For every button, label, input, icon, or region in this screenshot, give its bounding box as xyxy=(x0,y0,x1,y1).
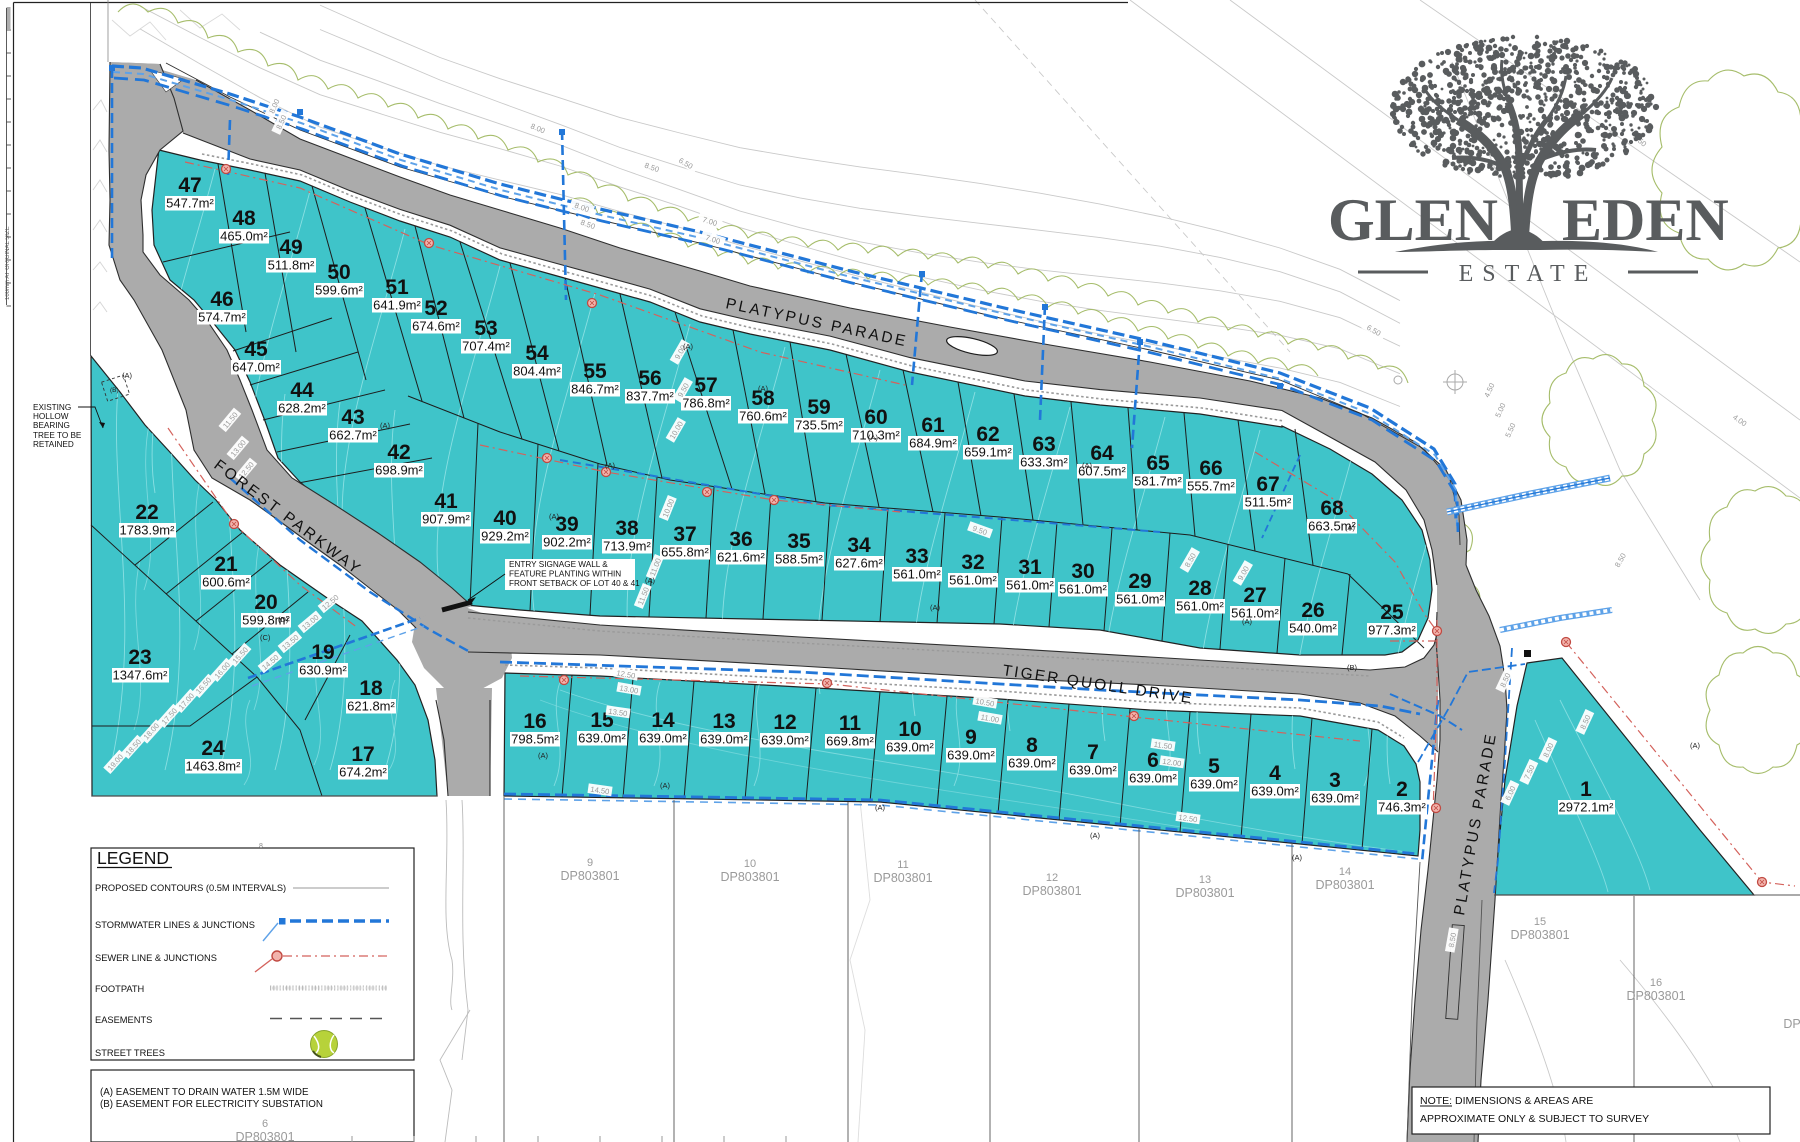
svg-text:RETAINED: RETAINED xyxy=(33,440,74,449)
svg-text:19: 19 xyxy=(311,641,334,664)
svg-text:786.8m²: 786.8m² xyxy=(682,396,730,411)
svg-text:38: 38 xyxy=(615,517,639,540)
svg-text:41: 41 xyxy=(434,490,458,513)
svg-text:639.0m²: 639.0m² xyxy=(1129,771,1177,786)
svg-text:54: 54 xyxy=(525,342,549,365)
svg-text:15: 15 xyxy=(1534,916,1546,928)
svg-text:798.5m²: 798.5m² xyxy=(511,732,559,747)
svg-text:(A): (A) xyxy=(1345,523,1356,532)
svg-text:DP803801: DP803801 xyxy=(873,871,932,885)
svg-text:628.2m²: 628.2m² xyxy=(278,401,326,416)
svg-text:561.0m²: 561.0m² xyxy=(1231,606,1279,621)
svg-text:662.7m²: 662.7m² xyxy=(329,428,377,443)
svg-text:31: 31 xyxy=(1018,556,1042,579)
svg-text:7: 7 xyxy=(1087,741,1099,764)
svg-text:698.9m²: 698.9m² xyxy=(375,463,423,478)
svg-text:DP803801: DP803801 xyxy=(1626,989,1685,1003)
svg-text:746.3m²: 746.3m² xyxy=(1378,800,1426,815)
svg-text:10: 10 xyxy=(898,718,921,741)
svg-text:(A): (A) xyxy=(1690,741,1701,750)
svg-text:713.9m²: 713.9m² xyxy=(603,539,651,554)
svg-text:1347.6m²: 1347.6m² xyxy=(113,668,169,683)
svg-text:35: 35 xyxy=(787,530,811,553)
svg-text:621.6m²: 621.6m² xyxy=(717,550,765,565)
svg-text:659.1m²: 659.1m² xyxy=(964,445,1012,460)
svg-text:56: 56 xyxy=(638,367,661,390)
svg-text:NOTE: DIMENSIONS & AREAS ARE: NOTE: DIMENSIONS & AREAS ARE xyxy=(1420,1095,1593,1107)
svg-text:(A) EASEMENT TO DRAIN WATER: (A) EASEMENT TO DRAIN WATER 1.5M WIDE xyxy=(100,1087,309,1098)
svg-text:62: 62 xyxy=(976,423,999,446)
svg-text:804.4m²: 804.4m² xyxy=(513,364,561,379)
svg-text:68: 68 xyxy=(1320,497,1344,520)
svg-text:13: 13 xyxy=(1199,874,1211,886)
svg-text:8: 8 xyxy=(259,843,263,850)
svg-text:1463.8m²: 1463.8m² xyxy=(186,759,242,774)
svg-text:(A): (A) xyxy=(122,371,133,380)
svg-text:61: 61 xyxy=(921,414,945,437)
svg-text:64: 64 xyxy=(1090,442,1114,465)
svg-text:DP803801: DP803801 xyxy=(1175,886,1234,900)
svg-text:540.0m²: 540.0m² xyxy=(1289,621,1337,636)
svg-text:BEARING: BEARING xyxy=(33,421,70,430)
svg-text:684.9m²: 684.9m² xyxy=(909,436,957,451)
svg-text:30: 30 xyxy=(1071,560,1094,583)
svg-text:837.7m²: 837.7m² xyxy=(626,389,674,404)
svg-text:(A): (A) xyxy=(683,342,694,351)
svg-text:57: 57 xyxy=(694,374,717,397)
svg-text:655.8m²: 655.8m² xyxy=(661,545,709,560)
svg-text:(C): (C) xyxy=(260,633,271,642)
svg-text:(A): (A) xyxy=(758,384,769,393)
svg-text:2: 2 xyxy=(1396,778,1408,801)
svg-text:511.5m²: 511.5m² xyxy=(1245,495,1292,510)
svg-text:(B) EASEMENT FOR ELECTRICITY: (B) EASEMENT FOR ELECTRICITY SUBSTATION xyxy=(100,1099,323,1110)
svg-text:APPROXIMATE ONLY & SUBJECT TO: APPROXIMATE ONLY & SUBJECT TO SURVEY xyxy=(1420,1113,1649,1125)
svg-text:760.6m²: 760.6m² xyxy=(739,409,787,424)
svg-text:46: 46 xyxy=(210,288,233,311)
svg-text:20: 20 xyxy=(254,591,277,614)
svg-text:47: 47 xyxy=(178,174,201,197)
svg-text:(D): (D) xyxy=(278,615,289,624)
svg-text:561.0m²: 561.0m² xyxy=(949,573,997,588)
svg-text:16: 16 xyxy=(523,710,546,733)
svg-text:18: 18 xyxy=(359,677,383,700)
svg-text:17: 17 xyxy=(351,743,374,766)
svg-text:621.8m²: 621.8m² xyxy=(347,699,395,714)
svg-text:641.9m²: 641.9m² xyxy=(373,298,421,313)
svg-text:674.2m²: 674.2m² xyxy=(339,765,387,780)
svg-text:3: 3 xyxy=(1329,769,1341,792)
svg-text:59: 59 xyxy=(807,396,830,419)
svg-text:633.3m²: 633.3m² xyxy=(1020,455,1068,470)
svg-text:639.0m²: 639.0m² xyxy=(1008,756,1056,771)
svg-text:11: 11 xyxy=(897,859,908,871)
svg-text:547.7m²: 547.7m² xyxy=(166,196,214,211)
svg-text:52: 52 xyxy=(424,297,447,320)
svg-text:13: 13 xyxy=(712,710,735,733)
svg-text:TREE TO BE: TREE TO BE xyxy=(33,431,82,440)
svg-text:(A): (A) xyxy=(549,512,560,521)
svg-text:977.3m²: 977.3m² xyxy=(1368,623,1416,638)
svg-text:588.5m²: 588.5m² xyxy=(775,552,823,567)
svg-text:561.0m²: 561.0m² xyxy=(1116,592,1164,607)
svg-text:(A): (A) xyxy=(930,603,941,612)
svg-text:9: 9 xyxy=(965,726,977,749)
svg-text:630.9m²: 630.9m² xyxy=(299,663,347,678)
svg-text:FRONT SETBACK OF LOT 40 & 41: FRONT SETBACK OF LOT 40 & 41 xyxy=(509,579,640,588)
svg-text:(A): (A) xyxy=(875,803,886,812)
svg-text:ENTRY SIGNAGE WALL &: ENTRY SIGNAGE WALL & xyxy=(509,560,608,569)
svg-text:(A): (A) xyxy=(380,421,391,430)
svg-text:600.6m²: 600.6m² xyxy=(202,575,250,590)
svg-text:627.6m²: 627.6m² xyxy=(835,556,883,571)
svg-text:SEWER LINE & JUNCTIONS: SEWER LINE & JUNCTIONS xyxy=(95,953,217,963)
svg-text:707.4m²: 707.4m² xyxy=(462,339,510,354)
svg-text:DP: DP xyxy=(1783,1017,1800,1031)
svg-text:21: 21 xyxy=(214,553,238,576)
svg-text:GLEN: GLEN xyxy=(1328,187,1498,253)
svg-text:37: 37 xyxy=(673,523,696,546)
svg-text:FEATURE PLANTING WITHIN: FEATURE PLANTING WITHIN xyxy=(509,570,621,579)
svg-text:DP803801: DP803801 xyxy=(720,870,779,884)
svg-text:16: 16 xyxy=(1650,977,1662,989)
svg-text:42: 42 xyxy=(387,441,410,464)
svg-text:33: 33 xyxy=(905,545,928,568)
svg-text:735.5m²: 735.5m² xyxy=(795,418,843,433)
svg-text:44: 44 xyxy=(290,379,314,402)
svg-text:DP803801: DP803801 xyxy=(1022,884,1081,898)
svg-text:639.0m²: 639.0m² xyxy=(761,733,809,748)
svg-text:STORMWATER LINES & JUNCTIONS: STORMWATER LINES & JUNCTIONS xyxy=(95,920,255,930)
svg-text:555.7m²: 555.7m² xyxy=(1187,479,1235,494)
svg-text:(A): (A) xyxy=(1242,617,1253,626)
svg-text:ESTATE: ESTATE xyxy=(1459,261,1598,287)
svg-text:29: 29 xyxy=(1128,570,1151,593)
svg-text:639.0m²: 639.0m² xyxy=(1190,777,1238,792)
svg-text:DP803801: DP803801 xyxy=(235,1130,294,1142)
svg-text:(A): (A) xyxy=(538,751,549,760)
svg-text:DP803801: DP803801 xyxy=(1315,878,1374,892)
svg-text:902.2m²: 902.2m² xyxy=(543,535,591,550)
svg-text:511.8m²: 511.8m² xyxy=(268,258,315,273)
svg-text:53: 53 xyxy=(474,317,497,340)
svg-text:45: 45 xyxy=(244,338,268,361)
svg-text:66: 66 xyxy=(1199,457,1222,480)
svg-text:63: 63 xyxy=(1032,433,1055,456)
svg-text:639.0m²: 639.0m² xyxy=(1311,791,1359,806)
svg-text:9: 9 xyxy=(587,857,593,869)
svg-text:25: 25 xyxy=(1380,601,1404,624)
svg-text:DP803801: DP803801 xyxy=(560,869,619,883)
svg-text:561.0m²: 561.0m² xyxy=(1006,578,1054,593)
svg-text:929.2m²: 929.2m² xyxy=(481,529,529,544)
svg-text:STREET TREES: STREET TREES xyxy=(95,1048,165,1058)
svg-text:100mm AT ORIGINAL SIZE: 100mm AT ORIGINAL SIZE xyxy=(5,226,11,300)
svg-text:639.0m²: 639.0m² xyxy=(1069,763,1117,778)
svg-text:907.9m²: 907.9m² xyxy=(422,512,470,527)
svg-text:24: 24 xyxy=(201,737,225,760)
svg-text:LEGEND: LEGEND xyxy=(97,848,169,868)
svg-text:10: 10 xyxy=(744,858,756,870)
svg-text:574.7m²: 574.7m² xyxy=(198,310,246,325)
svg-text:2972.1m²: 2972.1m² xyxy=(1559,800,1615,815)
svg-text:639.0m²: 639.0m² xyxy=(947,748,995,763)
svg-text:55: 55 xyxy=(583,360,607,383)
svg-text:48: 48 xyxy=(232,207,256,230)
svg-text:(A): (A) xyxy=(605,461,616,470)
svg-text:6: 6 xyxy=(1147,749,1159,772)
svg-text:561.0m²: 561.0m² xyxy=(893,567,941,582)
svg-text:8: 8 xyxy=(1026,734,1038,757)
svg-text:639.0m²: 639.0m² xyxy=(886,740,934,755)
svg-text:FOOTPATH: FOOTPATH xyxy=(95,984,144,994)
svg-text:PROPOSED CONTOURS (0.5M INTERV: PROPOSED CONTOURS (0.5M INTERVALS) xyxy=(95,883,286,893)
svg-text:669.8m²: 669.8m² xyxy=(826,734,874,749)
svg-text:(A): (A) xyxy=(1082,461,1093,470)
svg-text:1783.9m²: 1783.9m² xyxy=(120,523,176,538)
svg-text:EXISTING: EXISTING xyxy=(33,403,71,412)
svg-text:(B): (B) xyxy=(110,387,119,394)
svg-text:561.0m²: 561.0m² xyxy=(1059,582,1107,597)
svg-text:561.0m²: 561.0m² xyxy=(1176,599,1224,614)
svg-text:11: 11 xyxy=(839,712,862,735)
svg-text:65: 65 xyxy=(1146,452,1170,475)
svg-text:581.7m²: 581.7m² xyxy=(1134,474,1182,489)
svg-text:5: 5 xyxy=(1208,755,1220,778)
svg-text:(A): (A) xyxy=(868,433,879,442)
svg-text:43: 43 xyxy=(341,406,364,429)
svg-text:14: 14 xyxy=(1339,866,1351,878)
svg-text:60: 60 xyxy=(864,406,887,429)
svg-text:4: 4 xyxy=(1269,762,1281,785)
svg-text:12: 12 xyxy=(1046,872,1058,884)
svg-text:6: 6 xyxy=(262,1118,268,1130)
svg-text:EASEMENTS: EASEMENTS xyxy=(95,1015,152,1025)
svg-text:639.0m²: 639.0m² xyxy=(578,731,626,746)
svg-text:846.7m²: 846.7m² xyxy=(571,382,619,397)
svg-text:599.6m²: 599.6m² xyxy=(315,283,363,298)
svg-text:14: 14 xyxy=(651,709,675,732)
svg-text:(A): (A) xyxy=(645,576,656,585)
svg-text:674.6m²: 674.6m² xyxy=(412,319,460,334)
svg-text:639.0m²: 639.0m² xyxy=(639,731,687,746)
svg-text:22: 22 xyxy=(135,501,158,524)
svg-text:26: 26 xyxy=(1301,599,1324,622)
svg-text:49: 49 xyxy=(279,236,302,259)
svg-text:(B): (B) xyxy=(1347,663,1358,672)
svg-text:34: 34 xyxy=(847,534,871,557)
svg-text:40: 40 xyxy=(493,507,516,530)
svg-text:36: 36 xyxy=(729,528,752,551)
svg-text:23: 23 xyxy=(128,646,151,669)
svg-text:12: 12 xyxy=(773,711,796,734)
svg-text:(A): (A) xyxy=(660,781,671,790)
svg-text:DP803801: DP803801 xyxy=(1510,928,1569,942)
svg-text:HOLLOW: HOLLOW xyxy=(33,412,69,421)
svg-text:28: 28 xyxy=(1188,577,1212,600)
svg-text:EDEN: EDEN xyxy=(1562,187,1729,253)
svg-text:(A): (A) xyxy=(1292,853,1303,862)
svg-text:67: 67 xyxy=(1256,473,1279,496)
svg-text:27: 27 xyxy=(1243,584,1266,607)
svg-text:50: 50 xyxy=(327,261,350,284)
svg-text:1: 1 xyxy=(1580,778,1592,801)
svg-text:647.0m²: 647.0m² xyxy=(232,360,280,375)
svg-text:32: 32 xyxy=(961,551,984,574)
svg-text:51: 51 xyxy=(385,276,409,299)
svg-text:639.0m²: 639.0m² xyxy=(1251,784,1299,799)
svg-text:(A): (A) xyxy=(1090,831,1101,840)
svg-text:465.0m²: 465.0m² xyxy=(220,229,268,244)
svg-text:639.0m²: 639.0m² xyxy=(700,732,748,747)
